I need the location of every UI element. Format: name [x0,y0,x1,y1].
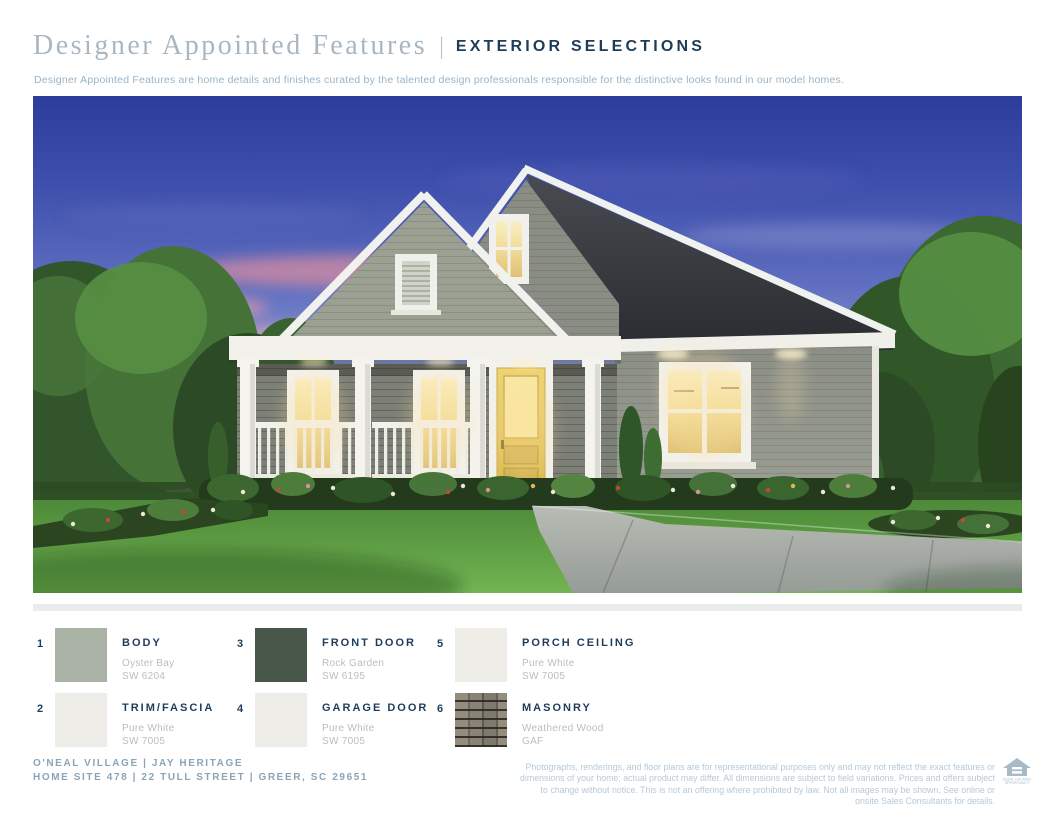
legal-disclaimer: Photographs, renderings, and floor plans… [515,762,995,808]
swatch-front-door [255,628,307,682]
community-info: O'NEAL VILLAGE | JAY HERITAGE HOME SITE … [33,757,368,785]
selection-label: PORCH CEILING [522,637,635,649]
swatch-trim-fascia [55,693,107,747]
swatch-porch-ceiling [455,628,507,682]
selections-column-2: 3 FRONT DOOR Rock GardenSW 6195 4 GARAGE… [237,628,437,758]
address-line: HOME SITE 478 | 22 TULL STREET | GREER, … [33,771,368,785]
selection-number: 4 [237,693,255,748]
header: Designer Appointed Features|EXTERIOR SEL… [33,30,705,62]
gable-window [489,214,529,284]
swatch-body [55,628,107,682]
selection-label: FRONT DOOR [322,637,416,649]
selections-column-1: 1 BODY Oyster BaySW 6204 2 TRIM/FASCIA P… [37,628,237,758]
selection-item-garage-door: 4 GARAGE DOOR Pure WhiteSW 7005 [237,693,437,748]
brochure-page: Designer Appointed Features|EXTERIOR SEL… [0,0,1055,815]
selection-number: 6 [437,693,455,748]
selection-product: Rock Garden [322,658,416,671]
selection-code: SW 6204 [122,671,174,684]
selection-label: BODY [122,637,174,649]
selection-label: GARAGE DOOR [322,702,428,714]
selection-code: SW 7005 [522,671,635,684]
selection-label: TRIM/FASCIA [122,702,214,714]
selections-legend: 1 BODY Oyster BaySW 6204 2 TRIM/FASCIA P… [37,628,637,758]
selection-code: SW 7005 [322,736,428,749]
title-separator: | [439,34,444,60]
porch-fascia [229,336,621,360]
selection-number: 1 [37,628,55,683]
swatch-garage-door [255,693,307,747]
porch-column [237,358,259,492]
page-title: Designer Appointed Features [33,30,427,61]
selection-code: GAF [522,736,604,749]
selections-column-3: 5 PORCH CEILING Pure WhiteSW 7005 6 MASO… [437,628,637,758]
selection-label: MASONRY [522,702,604,714]
selection-product: Pure White [122,723,214,736]
community-line: O'NEAL VILLAGE | JAY HERITAGE [33,757,368,771]
selection-product: Pure White [322,723,428,736]
corner-board [872,346,879,500]
equal-housing-icon: EQUAL HOUSING OPPORTUNITY [1002,757,1032,785]
equal-housing-logo: EQUAL HOUSING OPPORTUNITY [1001,757,1033,790]
selection-item-body: 1 BODY Oyster BaySW 6204 [37,628,237,683]
porch-column [352,358,374,492]
selection-code: SW 7005 [122,736,214,749]
selection-product: Pure White [522,658,635,671]
subtitle: Designer Appointed Features are home det… [34,74,844,86]
selection-item-masonry: 6 MASONRY Weathered WoodGAF [437,693,637,748]
house-rendering-scene [33,96,1022,593]
selection-number: 5 [437,628,455,683]
selection-item-porch-ceiling: 5 PORCH CEILING Pure WhiteSW 7005 [437,628,637,683]
house-rendering [33,96,1022,593]
gable-vent [391,254,441,315]
section-title: EXTERIOR SELECTIONS [456,38,705,55]
selection-number: 3 [237,628,255,683]
selection-product: Weathered Wood [522,723,604,736]
selection-item-trim-fascia: 2 TRIM/FASCIA Pure WhiteSW 7005 [37,693,237,748]
swatch-masonry-texture [455,693,507,747]
selection-item-front-door: 3 FRONT DOOR Rock GardenSW 6195 [237,628,437,683]
selection-code: SW 6195 [322,671,416,684]
selection-number: 2 [37,693,55,748]
porch-column [582,358,604,492]
section-divider [33,604,1022,611]
svg-text:OPPORTUNITY: OPPORTUNITY [1005,781,1030,785]
selection-product: Oyster Bay [122,658,174,671]
